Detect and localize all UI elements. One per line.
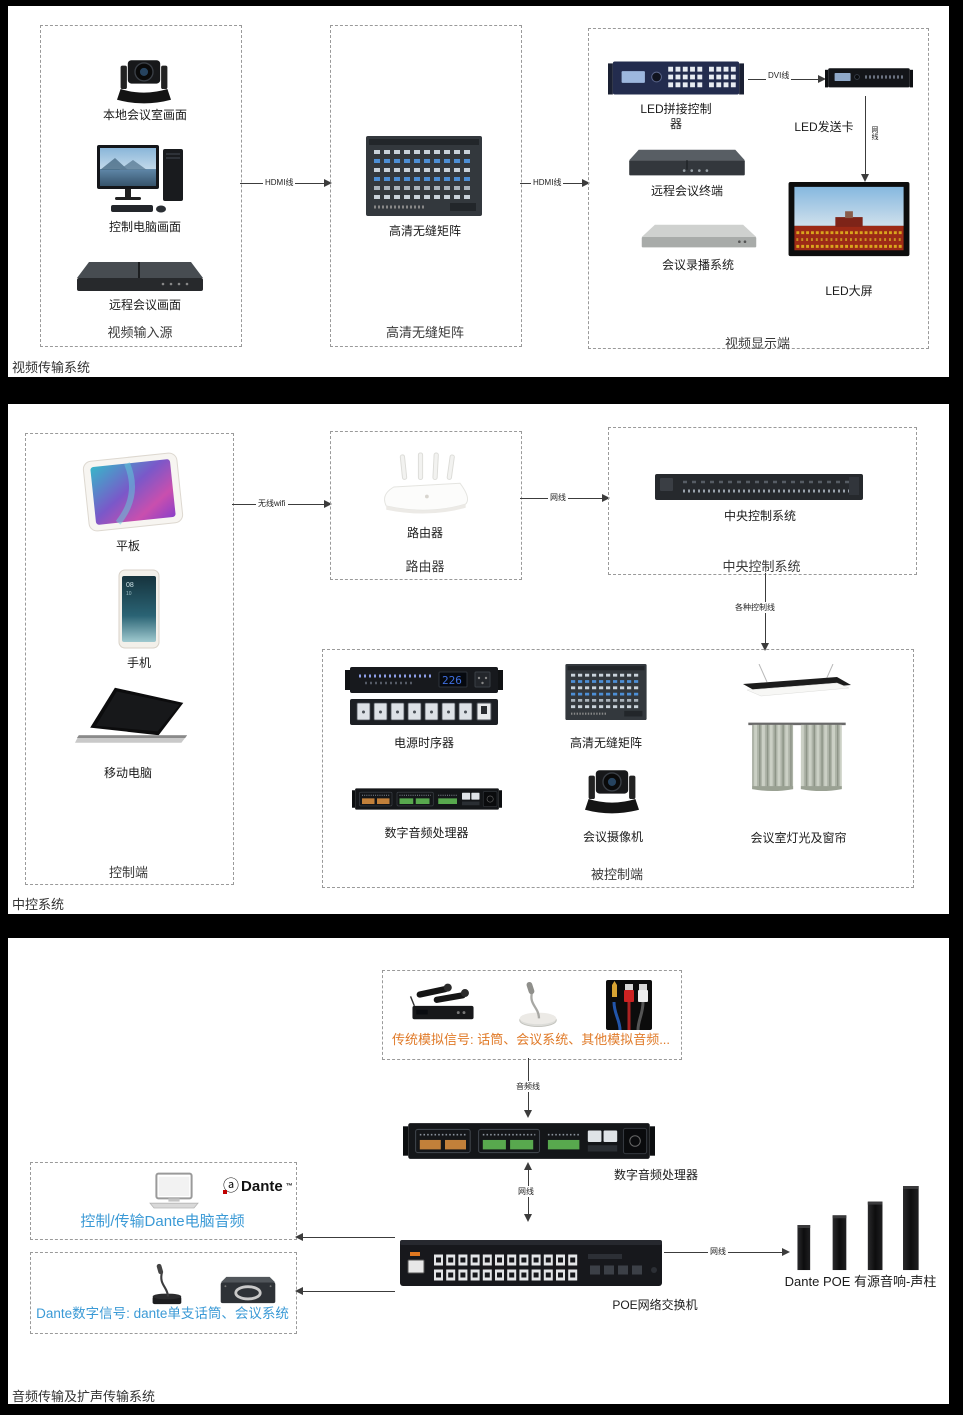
- arrow-analog-to-dsp-label: 音频线: [514, 1081, 542, 1092]
- led-screen-icon: [788, 182, 910, 260]
- conference-camera-label: 会议摄像机: [533, 830, 693, 845]
- arrow-central-to-controlled-label: 各种控制线: [733, 602, 777, 613]
- dante-logo: ⓐDante™: [223, 1178, 293, 1195]
- dante-mic-icon: [146, 1262, 186, 1306]
- arrow-card-to-screen-label: 网线: [869, 124, 879, 142]
- conference-box-icon: [218, 1274, 278, 1306]
- hd-matrix-small-icon: [550, 664, 662, 720]
- arrow-matrix-to-display-label: HDMI线: [531, 177, 563, 188]
- control-pc-label: 控制电脑画面: [65, 220, 225, 235]
- gooseneck-mic-icon: [513, 978, 563, 1028]
- router-box-label: 路由器: [330, 556, 520, 575]
- svg-text:10: 10: [126, 591, 132, 597]
- conference-camera-icon: [576, 758, 648, 822]
- remote-source-icon: [75, 256, 205, 296]
- analog-sources-label: 传统模拟信号: 话筒、会议系统、其他模拟音频...: [386, 1032, 676, 1048]
- arrow-dsp-to-switch-label: 网线: [516, 1186, 536, 1197]
- ceiling-light-icon: [737, 664, 855, 714]
- recorder-icon: [638, 220, 760, 254]
- section-control: 平板 0810 手机 移动电脑 控制端 无线wifi 路由器 路由器 网线 中央…: [8, 404, 949, 914]
- section-audio: 传统模拟信号: 话筒、会议系统、其他模拟音频... 音频线 数字音频处理器 网线…: [8, 938, 949, 1404]
- laptop-label: 移动电脑: [48, 766, 208, 781]
- line-switch-to-dantepc: [297, 1237, 395, 1238]
- section-video-label: 视频传输系统: [12, 357, 90, 376]
- led-send-card-label: LED发送卡: [769, 120, 879, 135]
- ptz-camera-icon: [106, 53, 182, 107]
- led-controller-icon: [608, 53, 744, 101]
- dante-logo-text: Dante: [241, 1178, 283, 1195]
- router-device-label: 路由器: [345, 526, 505, 541]
- control-pc-icon: [95, 143, 195, 221]
- laptop-outline-icon: [146, 1170, 202, 1214]
- power-sequencer-label: 电源时序器: [344, 736, 504, 751]
- svg-text:08: 08: [126, 582, 134, 589]
- video-matrix-box-label: 高清无缝矩阵: [330, 322, 520, 341]
- hd-matrix-device-label: 高清无缝矩阵: [345, 224, 505, 239]
- phone-icon: 0810: [118, 569, 160, 649]
- arrow-client-to-router-label: 无线wifi: [256, 498, 288, 509]
- central-control-icon: [653, 469, 865, 505]
- arrow-input-to-matrix-label: HDMI线: [263, 177, 295, 188]
- led-screen-label: LED大屏: [789, 284, 909, 299]
- audio-dsp-icon: [395, 1120, 663, 1162]
- led-send-card-icon: [825, 58, 913, 96]
- control-client-box-label: 控制端: [25, 862, 232, 881]
- dante-logo-tm: ™: [286, 1183, 293, 1190]
- audio-dsp-label: 数字音频处理器: [576, 1168, 736, 1183]
- led-controller-label: LED拼接控制器: [636, 102, 716, 132]
- arrow-switch-to-speakers-label: 网线: [708, 1246, 728, 1257]
- central-control-box-label: 中央控制系统: [608, 556, 915, 575]
- arrow-card-to-screen: [865, 96, 866, 180]
- hd-matrix-small-label: 高清无缝矩阵: [526, 736, 686, 751]
- conference-terminal-icon: [625, 146, 749, 182]
- conference-terminal-label: 远程会议终端: [607, 184, 767, 199]
- column-speakers-icon: [790, 1186, 930, 1272]
- dsp-label: 数字音频处理器: [344, 826, 509, 841]
- line-switch-to-dantedev: [297, 1291, 395, 1292]
- laptop-icon: [75, 687, 189, 753]
- room-light-curtain-label: 会议室灯光及窗帘: [716, 831, 881, 846]
- power-sequencer-icon: 226: [345, 666, 503, 728]
- audio-cables-icon: [606, 980, 652, 1030]
- curtains-icon: [745, 719, 849, 793]
- dante-devices-label: Dante数字信号: dante单支话筒、会议系统: [32, 1306, 293, 1323]
- local-room-label: 本地会议室画面: [65, 108, 225, 123]
- section-video: 本地会议室画面 控制电脑画面 远程会议画面 视频输入源 HDMI线 高清无缝矩阵…: [8, 6, 949, 377]
- router-icon: [373, 451, 477, 523]
- poe-switch-icon: [398, 1230, 664, 1292]
- wireless-mic-icon: [408, 983, 478, 1025]
- tablet-icon: [81, 449, 184, 535]
- recorder-label: 会议录播系统: [618, 258, 778, 273]
- video-input-box-label: 视频输入源: [40, 322, 240, 341]
- column-speakers-label: Dante POE 有源音响-声柱: [783, 1274, 938, 1290]
- svg-text:226: 226: [442, 674, 462, 687]
- section-audio-label: 音频传输及扩声传输系统: [12, 1386, 155, 1405]
- diagram-canvas: 本地会议室画面 控制电脑画面 远程会议画面 视频输入源 HDMI线 高清无缝矩阵…: [0, 0, 963, 1415]
- dante-logo-icon: ⓐ: [223, 1179, 239, 1195]
- hd-matrix-icon: [366, 136, 482, 216]
- remote-source-label: 远程会议画面: [65, 298, 225, 313]
- central-control-device-label: 中央控制系统: [680, 509, 840, 524]
- video-display-box-label: 视频显示端: [588, 333, 927, 352]
- dante-pc-label: 控制/传输Dante电脑音频: [34, 1213, 291, 1232]
- tablet-label: 平板: [48, 539, 208, 554]
- arrow-router-to-central-label: 网线: [548, 492, 568, 503]
- phone-label: 手机: [59, 656, 219, 671]
- controlled-box-label: 被控制端: [322, 864, 912, 883]
- poe-switch-label: POE网络交换机: [575, 1298, 735, 1313]
- section-control-label: 中控系统: [12, 894, 64, 913]
- dsp-icon: [352, 777, 502, 821]
- arrow-ctrl-to-card-label: DVI线: [766, 70, 791, 81]
